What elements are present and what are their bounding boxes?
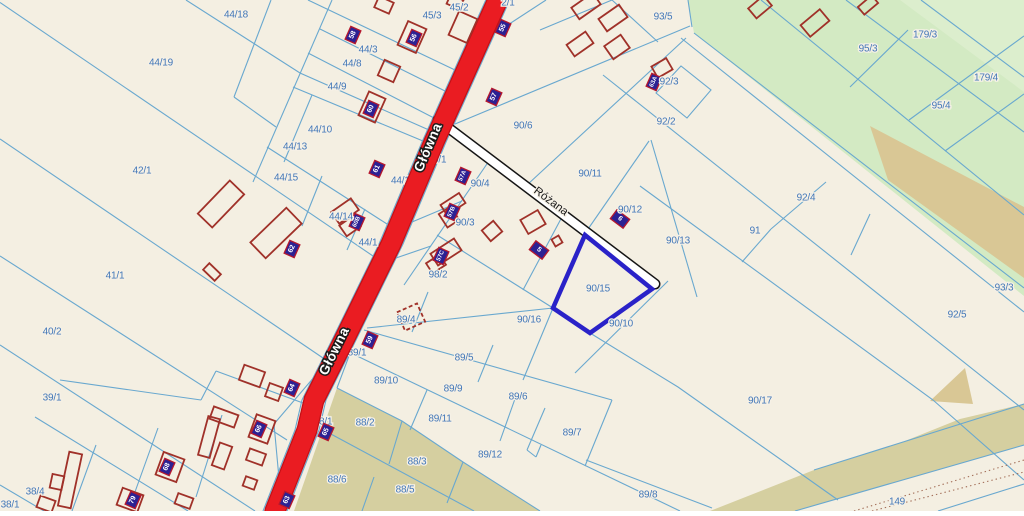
svg-text:45/3: 45/3	[423, 11, 442, 22]
svg-text:44/13: 44/13	[283, 142, 308, 153]
svg-text:44/19: 44/19	[149, 58, 174, 69]
svg-text:90/6: 90/6	[514, 121, 533, 132]
svg-text:89/6: 89/6	[509, 392, 528, 403]
svg-text:44/14: 44/14	[329, 212, 354, 223]
svg-text:42/1: 42/1	[133, 166, 152, 177]
svg-text:90/4: 90/4	[471, 179, 490, 190]
svg-text:179/3: 179/3	[913, 30, 938, 41]
svg-text:39/1: 39/1	[43, 393, 62, 404]
svg-text:90/16: 90/16	[517, 315, 542, 326]
svg-text:2/1: 2/1	[501, 0, 515, 9]
svg-text:44/8: 44/8	[343, 59, 362, 70]
svg-text:90/11: 90/11	[578, 169, 602, 180]
svg-text:179/4: 179/4	[974, 73, 999, 84]
svg-text:89/9: 89/9	[444, 384, 463, 395]
svg-text:95/3: 95/3	[859, 44, 878, 55]
svg-text:44/3: 44/3	[359, 45, 378, 56]
svg-text:44/10: 44/10	[308, 125, 333, 136]
svg-text:92/2: 92/2	[657, 117, 676, 128]
svg-text:90/17: 90/17	[748, 396, 773, 407]
svg-text:89/11: 89/11	[428, 414, 452, 425]
svg-text:93/5: 93/5	[654, 12, 673, 23]
svg-text:89/5: 89/5	[455, 353, 474, 364]
svg-text:45/2: 45/2	[450, 3, 469, 14]
svg-text:91: 91	[750, 226, 761, 237]
svg-text:98/2: 98/2	[429, 270, 448, 281]
svg-text:88/2: 88/2	[356, 418, 375, 429]
svg-text:90/15: 90/15	[586, 284, 611, 295]
svg-text:93/3: 93/3	[995, 283, 1014, 294]
svg-text:40/2: 40/2	[43, 327, 62, 338]
svg-text:92/5: 92/5	[948, 310, 967, 321]
svg-text:88/5: 88/5	[396, 485, 415, 496]
svg-text:89/8: 89/8	[639, 490, 658, 501]
svg-text:90/12: 90/12	[618, 205, 643, 216]
svg-text:88/3: 88/3	[408, 457, 427, 468]
svg-text:89/10: 89/10	[374, 376, 399, 387]
svg-text:41/1: 41/1	[106, 271, 125, 282]
svg-text:88/6: 88/6	[328, 475, 347, 486]
svg-text:38/4: 38/4	[26, 487, 45, 498]
svg-text:38/1: 38/1	[1, 500, 20, 511]
svg-text:149: 149	[889, 497, 906, 508]
svg-text:44/15: 44/15	[274, 173, 299, 184]
svg-text:90/10: 90/10	[609, 319, 634, 330]
svg-text:89/4: 89/4	[397, 315, 416, 326]
svg-text:44/9: 44/9	[328, 82, 347, 93]
svg-text:92/3: 92/3	[660, 77, 679, 88]
svg-text:89/12: 89/12	[478, 450, 503, 461]
svg-text:44/1: 44/1	[359, 238, 378, 249]
svg-text:44/18: 44/18	[224, 10, 249, 21]
svg-text:92/4: 92/4	[797, 193, 816, 204]
svg-text:89/7: 89/7	[563, 428, 582, 439]
svg-text:90/13: 90/13	[666, 236, 691, 247]
svg-text:95/4: 95/4	[932, 101, 951, 112]
svg-text:90/3: 90/3	[456, 218, 475, 229]
